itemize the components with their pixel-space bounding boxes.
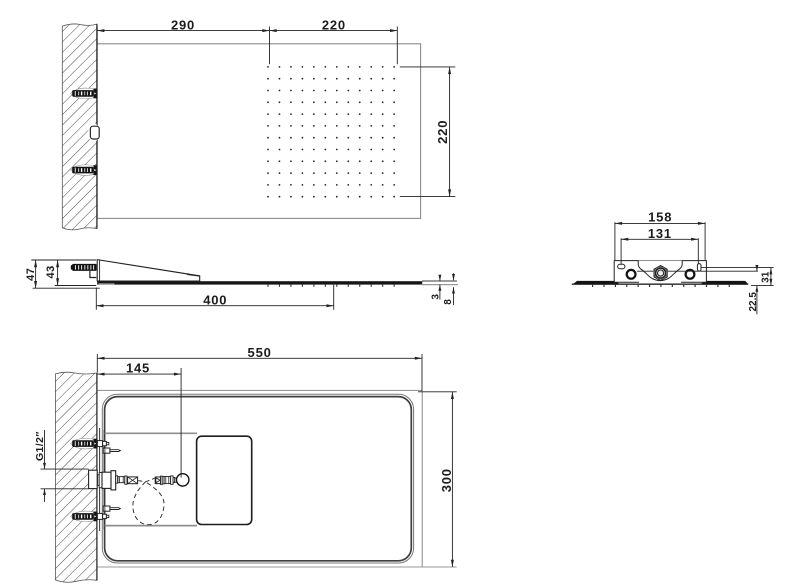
- svg-text:400: 400: [203, 292, 227, 307]
- svg-text:550: 550: [248, 345, 272, 360]
- svg-text:8: 8: [443, 299, 454, 305]
- svg-text:22.5: 22.5: [748, 292, 759, 312]
- svg-text:290: 290: [171, 18, 195, 33]
- svg-text:158: 158: [648, 210, 672, 225]
- svg-text:31: 31: [760, 271, 771, 283]
- svg-text:220: 220: [435, 120, 450, 144]
- svg-text:3: 3: [430, 294, 441, 300]
- svg-text:300: 300: [439, 468, 454, 492]
- svg-text:145: 145: [126, 361, 150, 376]
- svg-text:131: 131: [648, 226, 672, 241]
- svg-text:220: 220: [322, 18, 346, 33]
- svg-text:43: 43: [45, 265, 57, 278]
- svg-text:47: 47: [25, 268, 37, 281]
- svg-text:G1/2″: G1/2″: [34, 431, 46, 461]
